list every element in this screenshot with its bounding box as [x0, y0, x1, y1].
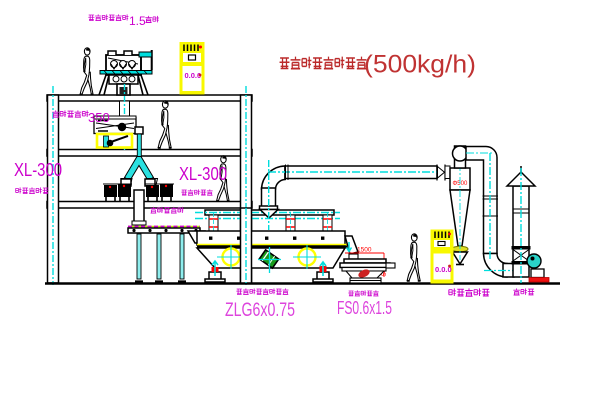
svg-text:350: 350	[88, 110, 110, 125]
svg-text:1.5: 1.5	[129, 14, 146, 28]
svg-text:FS0.6x1.5: FS0.6x1.5	[337, 298, 392, 318]
svg-text:XL-300: XL-300	[179, 164, 227, 184]
svg-text:XL-300: XL-300	[14, 160, 62, 180]
svg-text:(500kg/h): (500kg/h)	[364, 51, 476, 79]
svg-text:1500: 1500	[357, 247, 372, 254]
svg-text:ZLG6x0.75: ZLG6x0.75	[225, 300, 295, 321]
svg-text:0.0.0: 0.0.0	[185, 71, 202, 80]
